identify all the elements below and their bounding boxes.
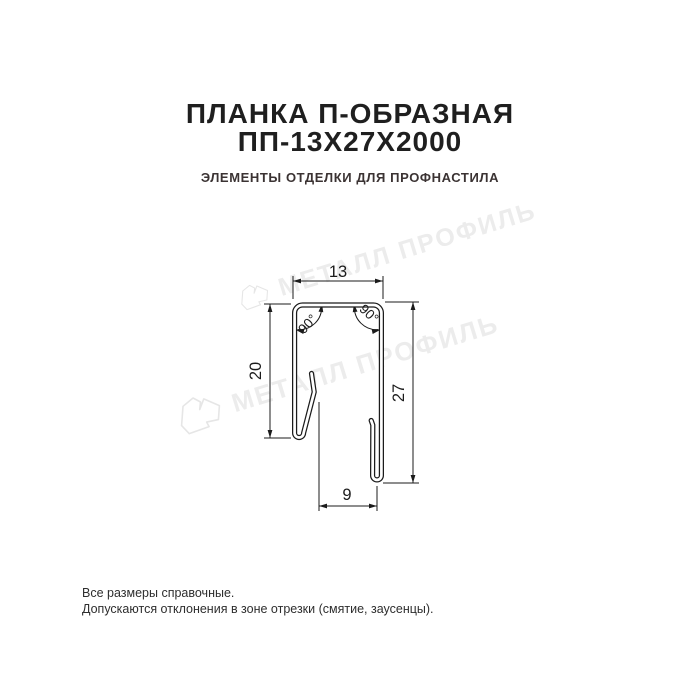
footer-note-line2: Допускаются отклонения в зоне отрезки (с… — [82, 602, 434, 618]
dim-label-left-height: 20 — [247, 362, 265, 380]
dim-label-bottom-width: 9 — [342, 486, 351, 504]
dim-label-right-height: 27 — [390, 384, 408, 402]
product-drawing-page: МЕТАЛЛ ПРОФИЛЬ МЕТАЛЛ ПРОФИЛЬ ПЛАНКА П-О… — [0, 0, 700, 700]
footer-notes: Все размеры справочные. Допускаются откл… — [82, 586, 434, 617]
dim-label-top-width: 13 — [329, 263, 347, 281]
angle-label-left: 90° — [295, 311, 320, 336]
footer-note-line1: Все размеры справочные. — [82, 586, 434, 602]
